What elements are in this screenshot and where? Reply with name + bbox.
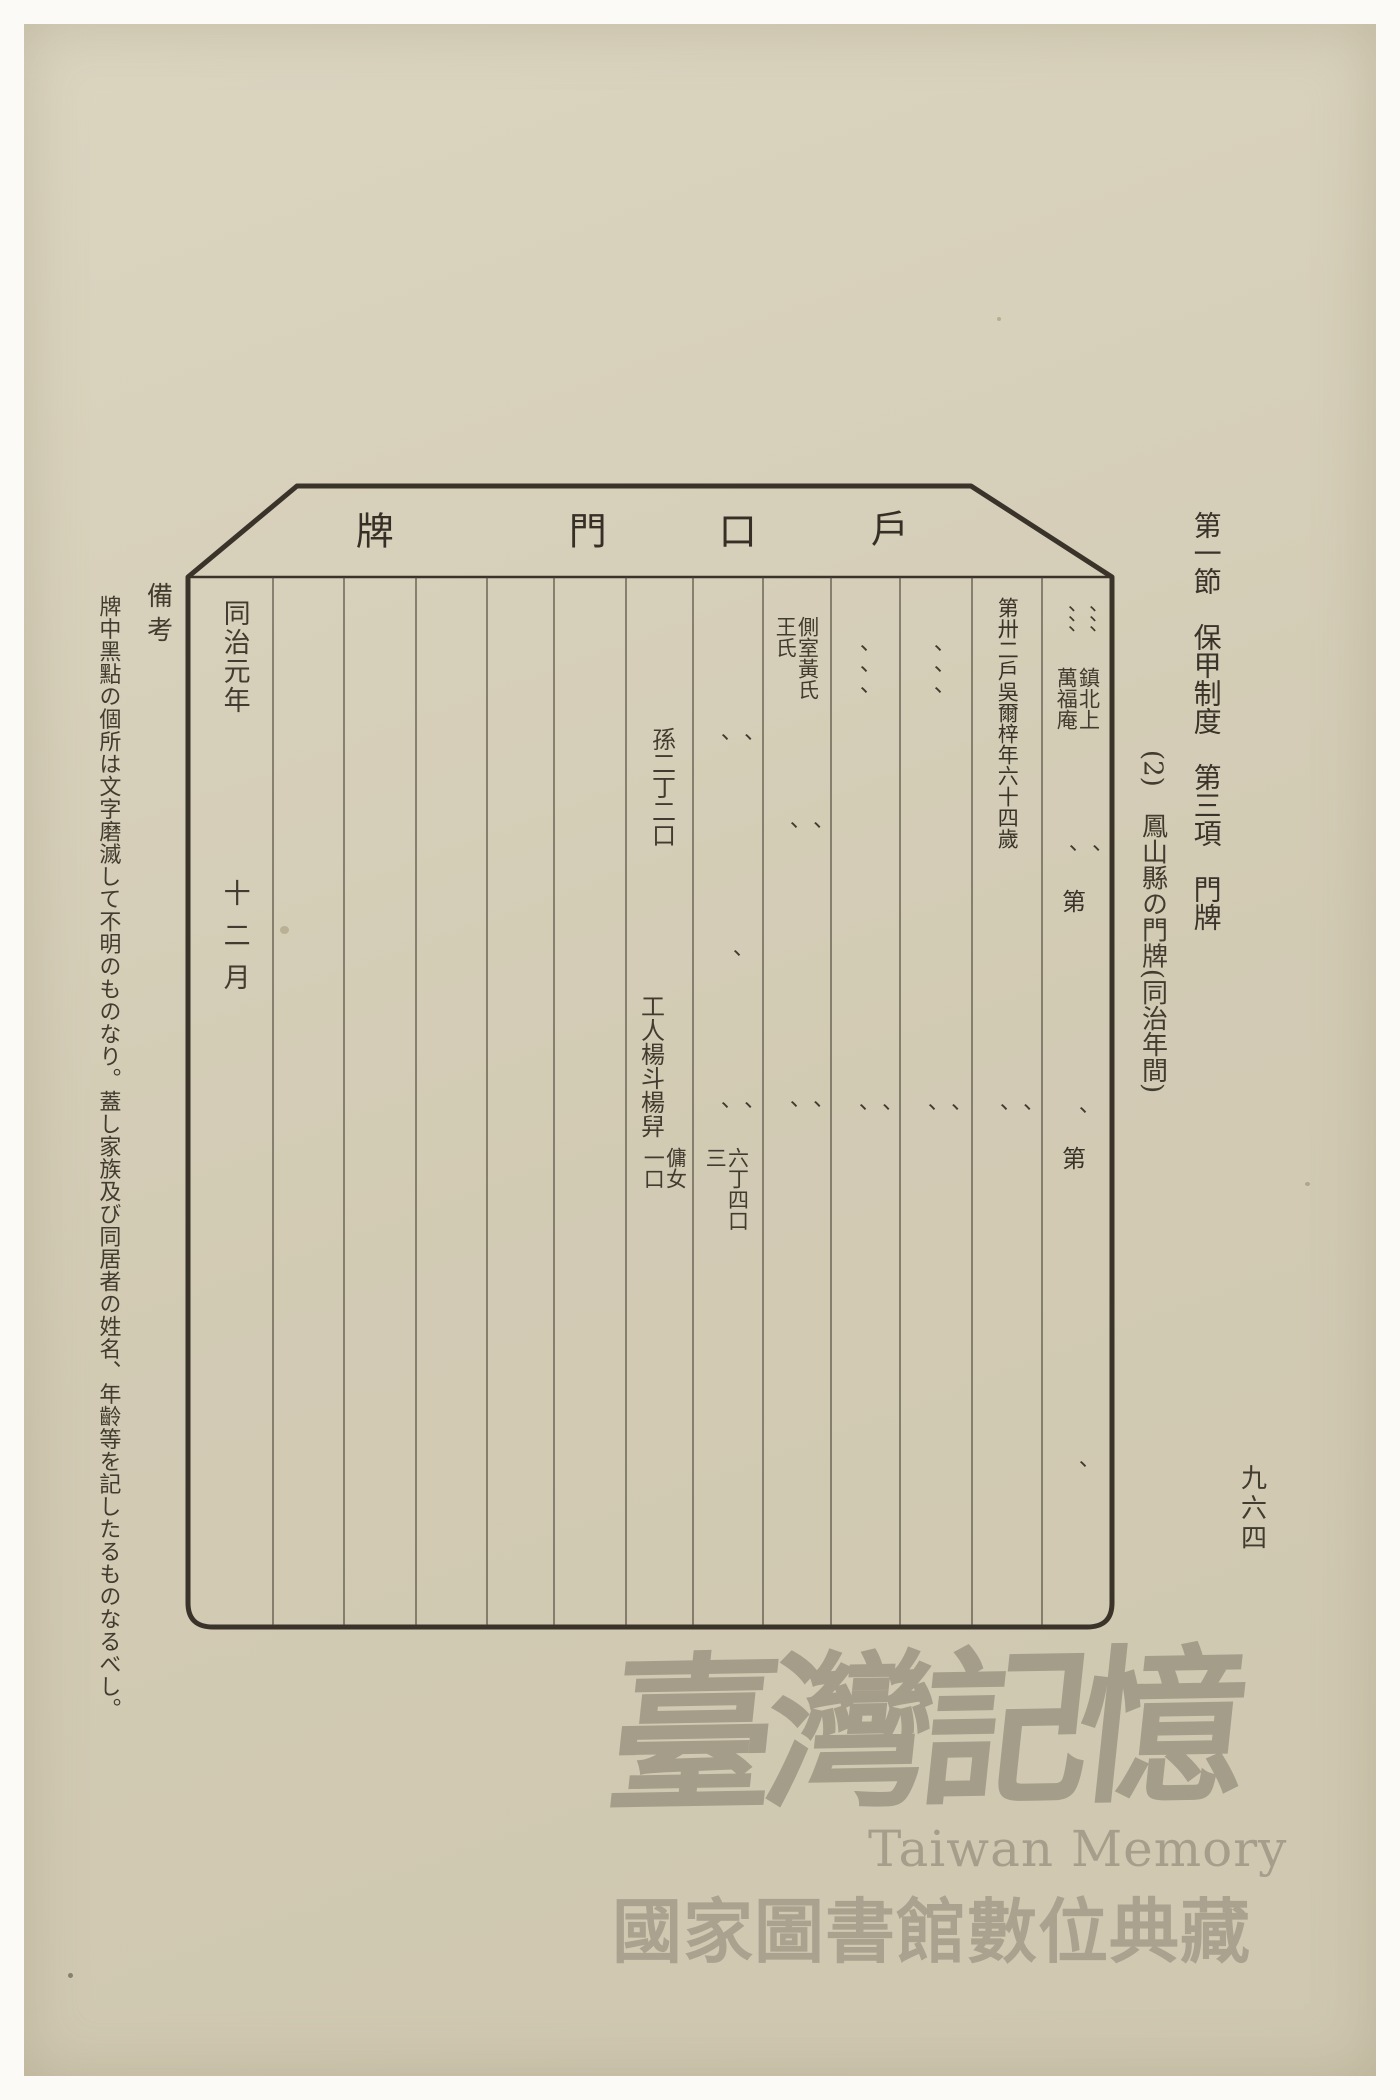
paper-speck	[280, 926, 289, 934]
worn-dot-single: 、	[1062, 1460, 1085, 1482]
paper-speck	[997, 317, 1001, 321]
worn-dot-single: 、	[1062, 1106, 1085, 1128]
cell-concubine: 側室黃氏 王氏	[774, 616, 819, 700]
scanned-page: 牌 門 口 戶 同治元年 十二月 孫二丁二口 工人楊斗楊舁 傭女 一口 、 、 …	[0, 0, 1400, 2100]
cell-plate-number-label: 第	[1058, 889, 1083, 913]
plaque-title-char-pai: 牌	[351, 511, 391, 549]
remarks-label: 備考	[143, 582, 171, 650]
plaque-title-char-men: 門	[564, 511, 604, 549]
worn-dots-pair: 、 、	[704, 1101, 751, 1123]
plaque-title-char-kou: 口	[714, 511, 754, 549]
cell-plate-number-label: 第	[1058, 1146, 1083, 1170]
paper-speck	[68, 1973, 73, 1978]
worn-dots-six: 、、、 、、、	[1053, 605, 1095, 645]
page-number: 九六四	[1237, 1464, 1265, 1554]
paper-background	[24, 24, 1376, 2076]
plaque-title-char-hu: 戶	[866, 509, 906, 547]
remarks-text: 牌中黑點の個所は文字磨滅して不明のものなり。蓋し家族及び同居者の姓名、年齡等を記…	[96, 595, 119, 1720]
cell-total-count: 六丁四口 三	[704, 1147, 749, 1231]
worn-dots-triple: 、、、	[917, 644, 940, 718]
worn-dots-pair: 、 、	[773, 1100, 820, 1122]
cell-maid-count: 傭女 一口	[642, 1147, 687, 1189]
worn-dots-pair: 、 、	[911, 1103, 958, 1125]
worn-dots-pair: 、 、	[773, 821, 820, 843]
worn-dot-single: 、	[716, 949, 739, 971]
worn-dots-pair: 、 、	[842, 1103, 889, 1125]
section-title: (2) 鳳山縣の門牌(同治年間)	[1138, 750, 1166, 1093]
margin-running-header: 第一節 保甲制度 第三項 門牌	[1191, 511, 1221, 931]
paper-speck	[1305, 1182, 1310, 1186]
cell-address: 鎮北上 萬福庵	[1055, 667, 1100, 730]
worn-dots-pair: 、 、	[704, 733, 751, 755]
worn-dots-triple: 、、、	[843, 644, 866, 718]
cell-month-december: 十二月	[219, 879, 248, 1005]
cell-workers: 工人楊斗楊舁	[637, 994, 662, 1138]
cell-grandsons: 孫二丁二口	[648, 727, 673, 847]
worn-dots-pair: 、 、	[983, 1103, 1030, 1125]
worn-dots-pair: 、 、	[1052, 844, 1099, 866]
cell-household-head: 第卅二戶吳爾梓年六十四歲	[996, 597, 1018, 849]
cell-era-tongzhi: 同治元年	[219, 599, 248, 715]
